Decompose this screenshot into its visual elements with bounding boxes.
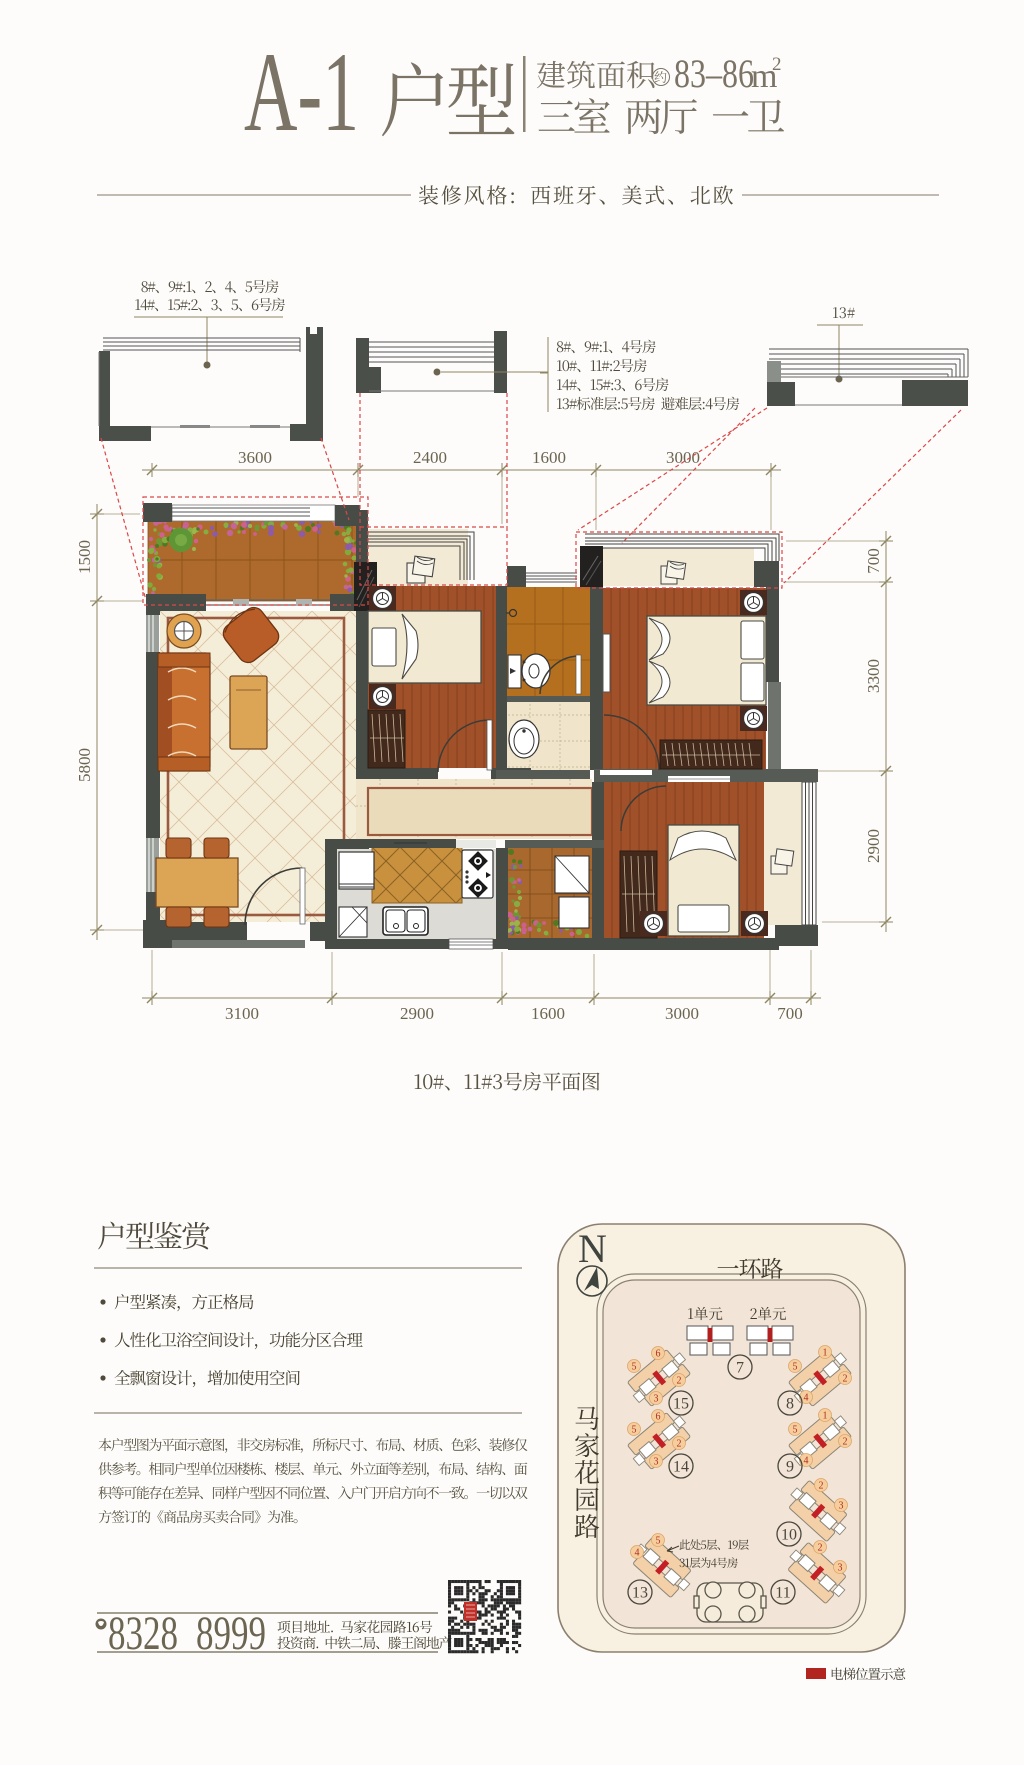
svg-text:13: 13 <box>632 1585 648 1602</box>
svg-text:2: 2 <box>843 1374 848 1385</box>
svg-text:3100: 3100 <box>225 1004 259 1023</box>
svg-text:8328: 8328 <box>108 1608 178 1661</box>
svg-text:3: 3 <box>654 1394 659 1405</box>
svg-text:3600: 3600 <box>238 448 272 467</box>
svg-text:N: N <box>578 1226 607 1271</box>
svg-text:1600: 1600 <box>532 448 566 467</box>
svg-text:15: 15 <box>673 1396 689 1413</box>
svg-text:9: 9 <box>786 1459 794 1476</box>
svg-text:2: 2 <box>677 1376 682 1387</box>
svg-text:5: 5 <box>632 1425 637 1436</box>
svg-text:14: 14 <box>673 1459 689 1476</box>
svg-text:8: 8 <box>786 1396 794 1413</box>
svg-text:2900: 2900 <box>400 1004 434 1023</box>
svg-text:10: 10 <box>781 1527 797 1544</box>
svg-text:7: 7 <box>736 1360 744 1377</box>
svg-text:2: 2 <box>677 1439 682 1450</box>
svg-text:6: 6 <box>656 1412 661 1423</box>
svg-text:700: 700 <box>864 548 883 574</box>
svg-text:A-1: A-1 <box>244 29 359 154</box>
svg-text:11: 11 <box>775 1585 790 1602</box>
svg-text:3: 3 <box>839 1501 844 1512</box>
svg-text:1: 1 <box>823 1411 828 1422</box>
svg-text:3: 3 <box>838 1563 843 1574</box>
svg-text:1: 1 <box>823 1348 828 1359</box>
svg-text:2900: 2900 <box>864 829 883 863</box>
svg-text:4: 4 <box>804 1456 809 1467</box>
svg-text:3300: 3300 <box>864 659 883 693</box>
svg-text:1500: 1500 <box>75 540 94 574</box>
svg-text:2400: 2400 <box>413 448 447 467</box>
svg-text:5: 5 <box>632 1362 637 1373</box>
svg-text:5: 5 <box>793 1425 798 1436</box>
svg-text:700: 700 <box>777 1004 803 1023</box>
svg-text:2: 2 <box>772 54 782 75</box>
svg-text:83–86: 83–86 <box>674 52 754 96</box>
svg-text:4: 4 <box>635 1548 640 1559</box>
svg-text:5: 5 <box>656 1536 661 1547</box>
svg-text:3: 3 <box>654 1457 659 1468</box>
svg-text:2: 2 <box>818 1543 823 1554</box>
svg-text:6: 6 <box>656 1349 661 1360</box>
svg-text:4: 4 <box>804 1393 809 1404</box>
svg-text:5800: 5800 <box>75 748 94 782</box>
svg-text:5: 5 <box>793 1362 798 1373</box>
svg-text:8999: 8999 <box>196 1608 266 1661</box>
svg-text:2: 2 <box>819 1481 824 1492</box>
svg-text:1600: 1600 <box>531 1004 565 1023</box>
svg-text:3000: 3000 <box>665 1004 699 1023</box>
svg-text:3000: 3000 <box>666 448 700 467</box>
svg-text:2: 2 <box>843 1437 848 1448</box>
